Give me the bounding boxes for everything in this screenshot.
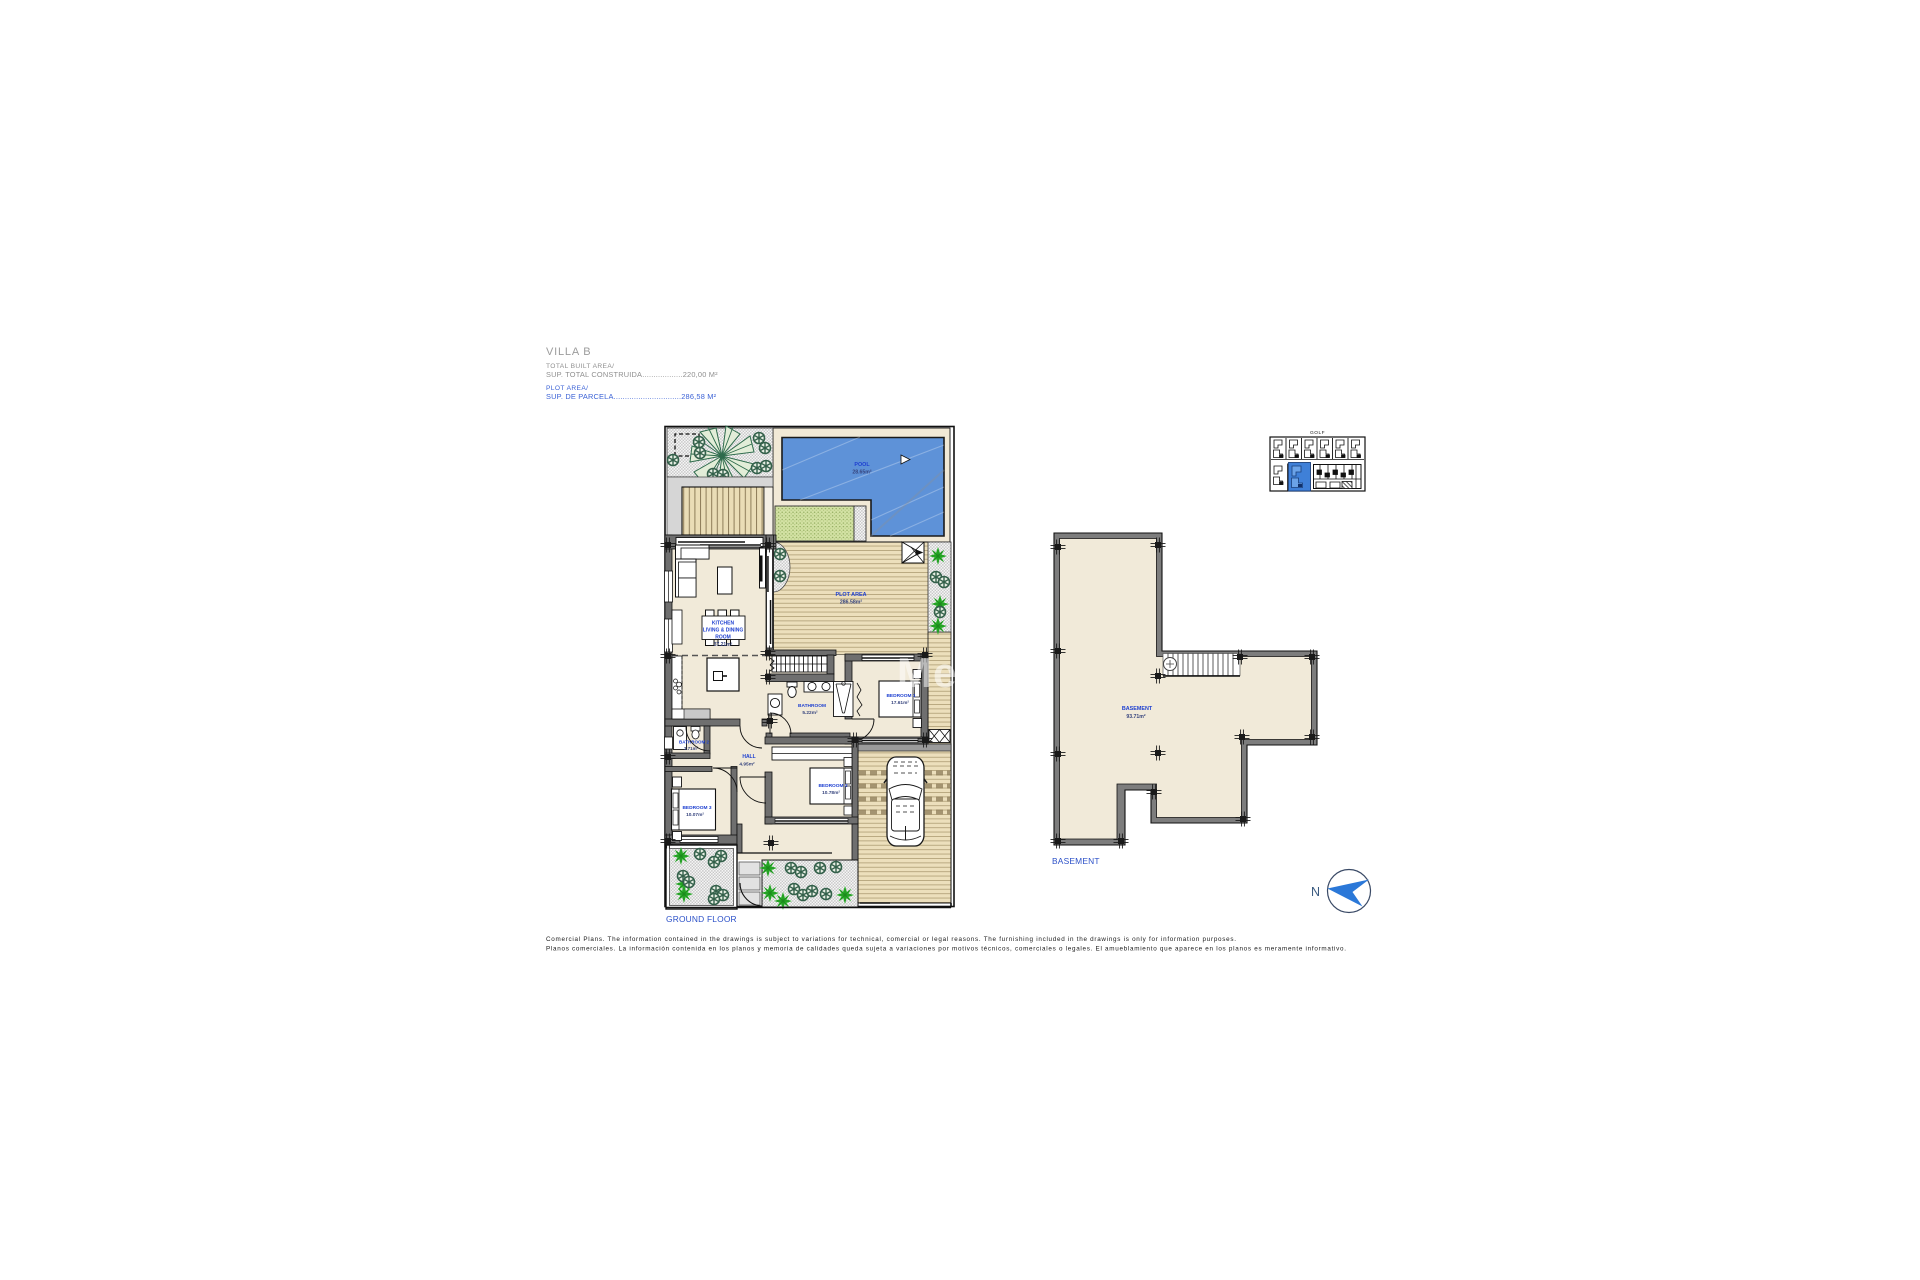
svg-text:HALL: HALL <box>742 754 755 760</box>
svg-text:BASEMENT: BASEMENT <box>1052 856 1100 866</box>
svg-text:KITCHEN: KITCHEN <box>712 621 735 627</box>
svg-text:10.07m²: 10.07m² <box>686 812 704 818</box>
svg-text:GROUND FLOOR: GROUND FLOOR <box>666 914 737 924</box>
svg-text:4.95m²: 4.95m² <box>739 762 755 768</box>
svg-text:BASEMENT: BASEMENT <box>1122 706 1153 712</box>
svg-text:BEDROOM 2: BEDROOM 2 <box>818 783 847 789</box>
svg-text:ROOM: ROOM <box>715 635 731 641</box>
svg-text:SUP. DE PARCELA...............: SUP. DE PARCELA.........................… <box>546 392 717 401</box>
svg-text:BATHROOM: BATHROOM <box>798 703 826 709</box>
svg-text:Med: Med <box>897 649 984 696</box>
svg-text:N: N <box>1311 885 1320 899</box>
svg-text:GOLF: GOLF <box>1310 430 1325 436</box>
svg-text:Planos comerciales. La informa: Planos comerciales. La información conte… <box>546 946 1346 953</box>
svg-text:TOTAL BUILT AREA/: TOTAL BUILT AREA/ <box>546 363 614 370</box>
svg-text:PLOT AREA/: PLOT AREA/ <box>546 385 588 392</box>
svg-text:BATHROOM 2: BATHROOM 2 <box>679 740 709 745</box>
svg-text:POOL: POOL <box>854 462 870 468</box>
svg-text:37.21m²: 37.21m² <box>714 642 733 648</box>
svg-text:SUP. TOTAL CONSTRUIDA.........: SUP. TOTAL CONSTRUIDA..................2… <box>546 370 718 379</box>
svg-text:Comercial Plans. The informati: Comercial Plans. The information contain… <box>546 936 1236 943</box>
svg-text:10.78m²: 10.78m² <box>822 790 840 796</box>
svg-text:PLOT AREA: PLOT AREA <box>836 592 867 598</box>
svg-text:286.58m²: 286.58m² <box>840 600 862 606</box>
svg-text:BEDROOM 3: BEDROOM 3 <box>682 805 711 811</box>
svg-text:VILLA B: VILLA B <box>546 346 591 358</box>
svg-text:17.61m²: 17.61m² <box>891 700 909 706</box>
svg-text:5.22m²: 5.22m² <box>802 710 818 716</box>
svg-text:LIVING & DINING: LIVING & DINING <box>703 628 744 634</box>
svg-text:93.71m²: 93.71m² <box>1126 714 1146 720</box>
svg-text:28.65m²: 28.65m² <box>852 470 872 476</box>
